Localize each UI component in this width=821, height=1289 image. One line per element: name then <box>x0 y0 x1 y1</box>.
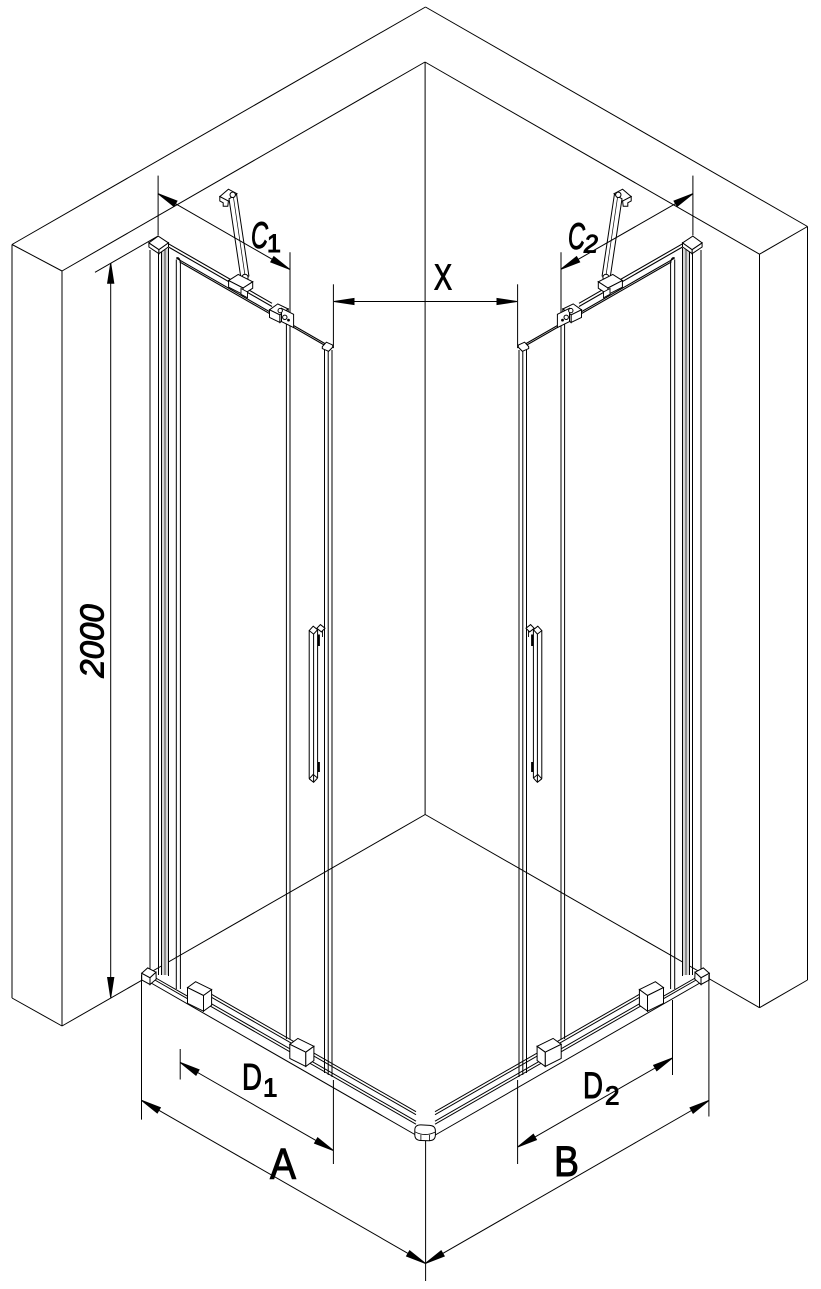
svg-text:X: X <box>434 257 452 298</box>
svg-text:D: D <box>242 1057 262 1098</box>
svg-text:1: 1 <box>267 230 281 258</box>
svg-text:C: C <box>251 215 268 256</box>
svg-text:2000: 2000 <box>74 604 111 679</box>
svg-text:1: 1 <box>263 1073 277 1103</box>
svg-text:2: 2 <box>583 231 598 259</box>
svg-text:C: C <box>568 216 585 257</box>
svg-text:2: 2 <box>605 1081 619 1111</box>
svg-text:B: B <box>554 1138 579 1186</box>
svg-text:A: A <box>270 1140 297 1189</box>
svg-text:D: D <box>583 1065 603 1106</box>
